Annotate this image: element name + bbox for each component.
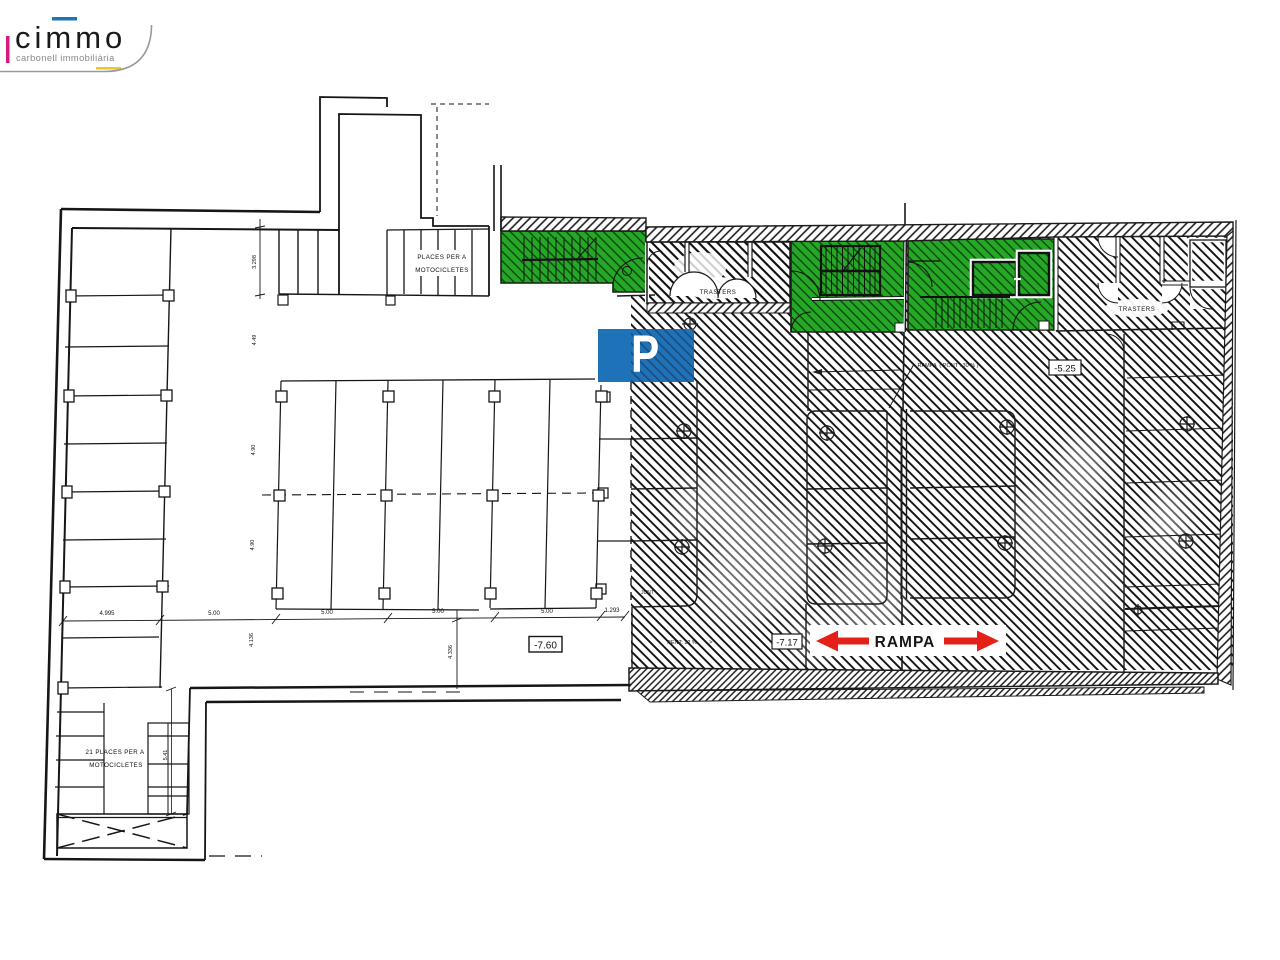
svg-text:TRASTERS: TRASTERS	[700, 290, 737, 296]
svg-text:-7.17: -7.17	[776, 638, 798, 649]
svg-text:PLACES PER A: PLACES PER A	[417, 254, 467, 261]
svg-text:4.995: 4.995	[99, 611, 115, 617]
svg-text:4.90: 4.90	[251, 445, 257, 456]
svg-text:4.49: 4.49	[252, 335, 258, 346]
svg-text:4.90: 4.90	[250, 540, 256, 551]
svg-text:3.298: 3.298	[252, 255, 258, 269]
svg-text:RAMPA ( PONT : 30 % ): RAMPA ( PONT : 30 % )	[918, 363, 979, 369]
svg-text:MOTOCICLETES: MOTOCICLETES	[89, 762, 143, 769]
svg-text:carbonell immobiliària: carbonell immobiliària	[16, 53, 115, 63]
svg-text:5.00: 5.00	[432, 609, 444, 615]
svg-text:1.293: 1.293	[604, 608, 620, 614]
svg-text:RAMPA: RAMPA	[875, 634, 936, 651]
svg-text:5.00: 5.00	[321, 610, 333, 616]
svg-text:>: >	[709, 640, 713, 646]
svg-text:5.00: 5.00	[541, 609, 553, 615]
svg-text:-5.25: -5.25	[1054, 364, 1076, 375]
svg-text:TRASTERS: TRASTERS	[1119, 307, 1156, 313]
svg-text:5.00: 5.00	[208, 611, 220, 617]
svg-text:cimmo: cimmo	[15, 20, 126, 55]
svg-text:P: P	[631, 326, 659, 385]
svg-text:JUNT: JUNT	[641, 590, 654, 596]
svg-text:4.136: 4.136	[249, 633, 255, 647]
svg-text:5.41: 5.41	[163, 750, 169, 761]
svg-text:21 PLACES PER A: 21 PLACES PER A	[86, 749, 145, 756]
svg-text:PENT: 12 %: PENT: 12 %	[667, 640, 697, 646]
svg-text:-7.60: -7.60	[534, 641, 557, 652]
svg-text:MOTOCICLETES: MOTOCICLETES	[415, 267, 469, 274]
svg-text:4.336: 4.336	[448, 645, 454, 659]
